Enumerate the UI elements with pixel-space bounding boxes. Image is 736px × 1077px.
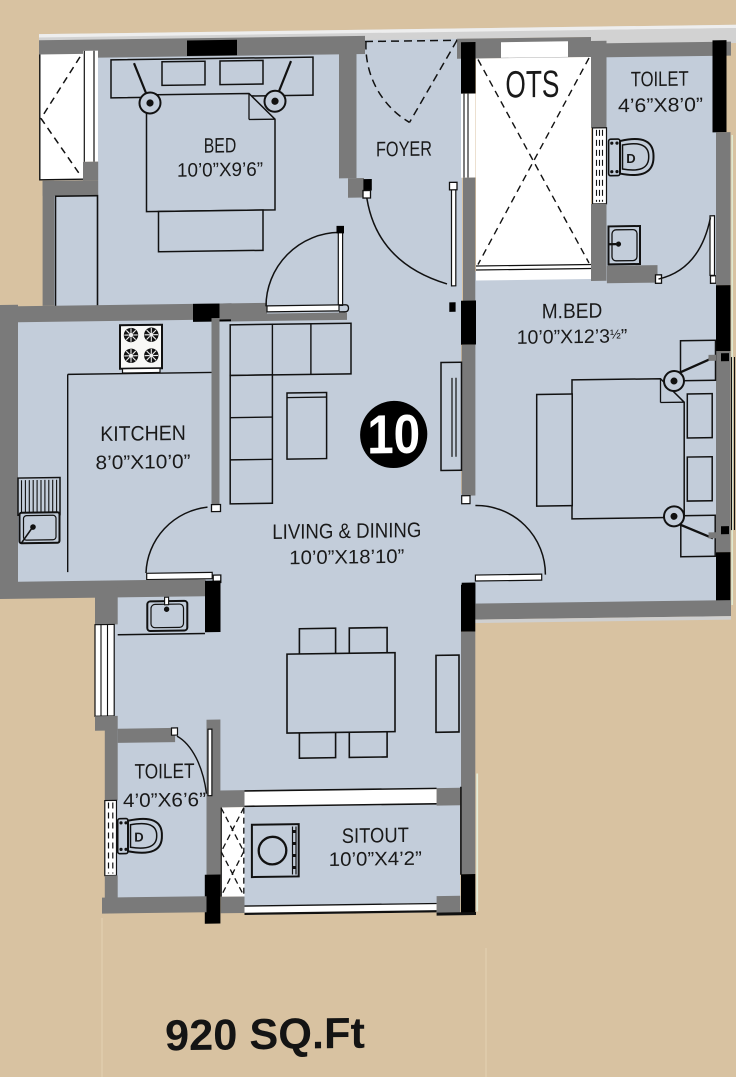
svg-text:TOILET: TOILET <box>135 760 195 784</box>
svg-text:M.BED: M.BED <box>542 300 603 324</box>
svg-text:D: D <box>626 151 635 166</box>
svg-text:TOILET: TOILET <box>631 68 689 92</box>
svg-text:D: D <box>134 830 143 845</box>
svg-text:4’0”X6’6”: 4’0”X6’6” <box>123 789 206 812</box>
svg-text:KITCHEN: KITCHEN <box>100 422 186 446</box>
svg-text:10’0”X18’10”: 10’0”X18’10” <box>289 546 404 570</box>
svg-text:10’0”X4’2”: 10’0”X4’2” <box>329 848 422 871</box>
svg-text:BED: BED <box>204 134 237 157</box>
svg-text:8’0”X10’0”: 8’0”X10’0” <box>96 451 191 474</box>
svg-text:920 SQ.Ft: 920 SQ.Ft <box>165 1010 365 1061</box>
svg-text:OTS: OTS <box>505 64 559 107</box>
svg-text:10’0”X9’6”: 10’0”X9’6” <box>177 159 263 182</box>
svg-text:4’6”X8’0”: 4’6”X8’0” <box>618 94 703 117</box>
svg-text:10: 10 <box>367 403 420 466</box>
svg-text:FOYER: FOYER <box>376 138 432 162</box>
svg-text:LIVING & DINING: LIVING & DINING <box>272 519 421 544</box>
svg-text:SITOUT: SITOUT <box>342 824 409 848</box>
